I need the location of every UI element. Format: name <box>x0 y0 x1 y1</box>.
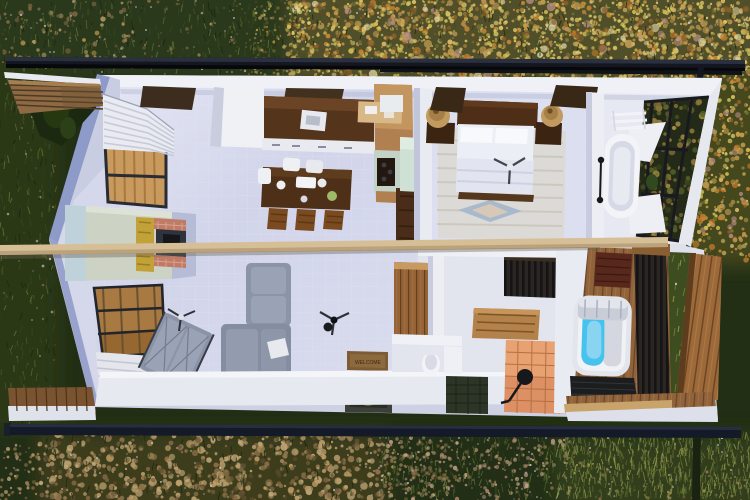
svg-text:WELCOME: WELCOME <box>355 360 382 366</box>
